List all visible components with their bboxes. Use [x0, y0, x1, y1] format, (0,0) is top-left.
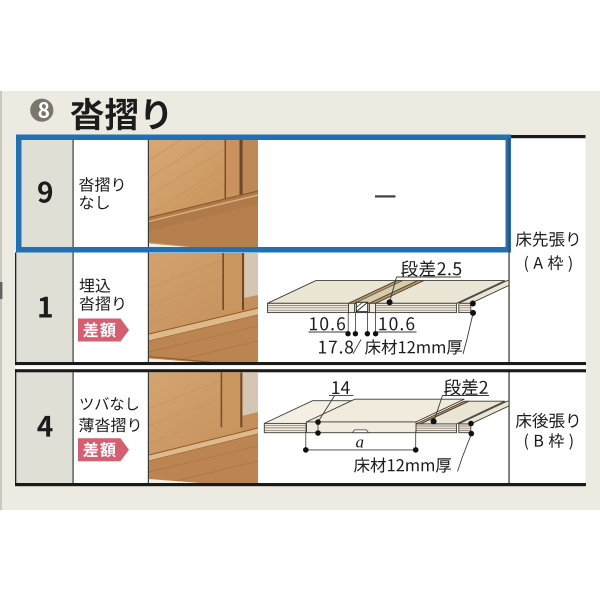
svg-text:a: a	[356, 433, 365, 452]
